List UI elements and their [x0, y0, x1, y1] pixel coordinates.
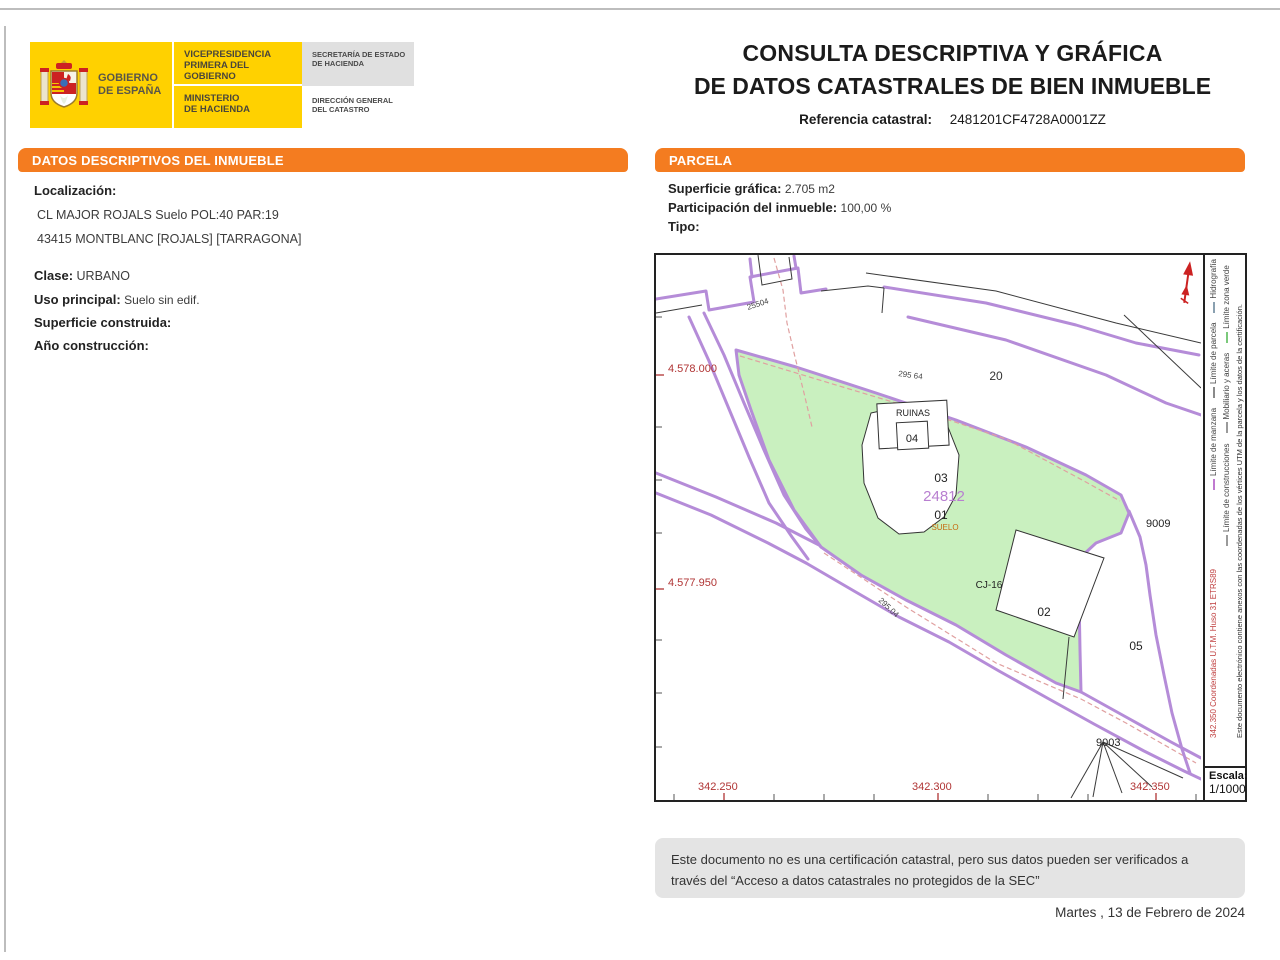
vicepresidencia-text: VICEPRESIDENCIA PRIMERA DEL GOBIERNO [174, 42, 302, 84]
map-label: RUINAS [896, 408, 930, 418]
legend-row-1: 342.350 Coordenadas U.T.M. Huso 31 ETRS8… [1207, 255, 1220, 764]
legend-label: Hidrografía [1209, 259, 1218, 299]
left-red-ticks [656, 375, 664, 589]
disclaimer-line2: través del “Acceso a datos catastrales n… [671, 870, 1229, 891]
scale-box: Escala: 1/1000 [1205, 766, 1245, 800]
map-label: 342.250 [698, 781, 738, 793]
legend-label: Límite de manzana [1209, 408, 1218, 476]
ministerio-cell: VICEPRESIDENCIA PRIMERA DEL GOBIERNO MIN… [172, 42, 302, 128]
map-label: 342.350 [1130, 781, 1170, 793]
address-line1: CL MAJOR ROJALS Suelo POL:40 PAR:19 [37, 208, 279, 222]
secretaria-text: SECRETARÍA DE ESTADO DE HACIENDA [302, 42, 414, 86]
direccion-general-text: DIRECCIÓN GENERAL DEL CATASTRO [302, 86, 414, 128]
north-arrow-icon [1179, 261, 1195, 304]
electronic-doc-note: Este documento electrónico contiene anex… [1235, 304, 1244, 738]
legend-dash-icon [1226, 423, 1228, 434]
disclaimer-line1: Este documento no es una certificación c… [671, 849, 1229, 870]
map-label: 24812 [923, 488, 965, 505]
map-label: 20 [989, 369, 1003, 383]
legend-dash-icon [1213, 479, 1215, 490]
document-date: Martes , 13 de Febrero de 2024 [655, 905, 1245, 920]
rotated-legend: 342.350 Coordenadas U.T.M. Huso 31 ETRS8… [1207, 255, 1247, 764]
document-title-block: CONSULTA DESCRIPTIVA Y GRÁFICA DE DATOS … [660, 40, 1245, 127]
ministerio-text: MINISTERIO DE HACIENDA [174, 84, 302, 128]
cadastral-map-svg: 20RUINAS04032481201SUELOCJ-1602059009900… [656, 255, 1201, 800]
legend-dash-icon [1226, 535, 1228, 546]
legend-label: Mobiliario y aceras [1222, 353, 1231, 420]
legend-label: Límite de parcela [1209, 323, 1218, 384]
legend-item: Límite de construcciones [1222, 444, 1231, 547]
legend-item: Límite de parcela [1209, 323, 1218, 398]
document-title-line1: CONSULTA DESCRIPTIVA Y GRÁFICA [660, 40, 1245, 67]
cadastral-map: 20RUINAS04032481201SUELOCJ-1602059009900… [656, 255, 1205, 800]
map-label: 4.577.950 [668, 577, 717, 589]
map-label: 25504 [746, 296, 770, 312]
bottom-ticks [674, 794, 1196, 800]
page-frame-left [4, 26, 6, 952]
map-label: 342.300 [912, 781, 952, 793]
localizacion-label: Localización: [34, 183, 116, 198]
section-header-parcela: PARCELA [655, 148, 1245, 172]
referencia-label: Referencia catastral: [799, 112, 932, 127]
superficie-construida-row: Superficie construida: [34, 315, 171, 330]
catastro-cell: SECRETARÍA DE ESTADO DE HACIENDA DIRECCI… [302, 42, 414, 128]
document-title-line2: DE DATOS CATASTRALES DE BIEN INMUEBLE [660, 73, 1245, 100]
map-label: 4.578.000 [668, 363, 717, 375]
legend-item: Hidrografía [1209, 259, 1218, 313]
map-label: 01 [934, 508, 948, 522]
map-label: 04 [906, 433, 918, 445]
uso-principal-row: Uso principal: Suelo sin edif. [34, 292, 200, 307]
spain-coat-of-arms-icon [38, 55, 90, 115]
gobierno-de-espana-cell: GOBIERNO DE ESPAÑA [30, 42, 172, 128]
gobierno-text: GOBIERNO DE ESPAÑA [98, 72, 161, 98]
map-label: 03 [934, 471, 948, 485]
legend-item: Límite de manzana [1209, 408, 1218, 490]
map-legend-sidebar: 342.350 Coordenadas U.T.M. Huso 31 ETRS8… [1205, 255, 1245, 800]
map-label: CJ-16 [976, 580, 1003, 591]
referencia-catastral: Referencia catastral: 2481201CF4728A0001… [660, 112, 1245, 127]
disclaimer-box: Este documento no es una certificación c… [655, 838, 1245, 898]
bottom-red-ticks [724, 793, 1156, 800]
legend-dash-icon [1213, 302, 1215, 313]
participacion-row: Participación del inmueble: 100,00 % [668, 200, 891, 215]
superficie-grafica-row: Superficie gráfica: 2.705 m2 [668, 181, 835, 196]
legend-item: Límite zona verde [1222, 265, 1231, 343]
legend-dash-icon [1226, 332, 1228, 343]
page-frame-top [0, 8, 1280, 10]
ano-construccion-row: Año construcción: [34, 338, 149, 353]
scale-label: Escala: [1209, 770, 1241, 782]
address-line2: 43415 MONTBLANC [ROJALS] [TARRAGONA] [37, 232, 301, 246]
left-ticks [656, 317, 662, 747]
legend-row-3: Este documento electrónico contiene anex… [1233, 255, 1246, 764]
legend-label: Límite de construcciones [1222, 444, 1231, 533]
legend-item: Mobiliario y aceras [1222, 353, 1231, 434]
cadastral-map-box: 20RUINAS04032481201SUELOCJ-1602059009900… [654, 253, 1247, 802]
map-label: 05 [1129, 639, 1143, 653]
cadastral-document-page: GOBIERNO DE ESPAÑA VICEPRESIDENCIA PRIME… [0, 0, 1280, 960]
referencia-value: 2481201CF4728A0001ZZ [950, 112, 1106, 127]
map-label: 9009 [1146, 518, 1170, 530]
government-logo-block: GOBIERNO DE ESPAÑA VICEPRESIDENCIA PRIME… [30, 42, 414, 128]
map-label: 02 [1037, 605, 1051, 619]
utm-coord-note: 342.350 Coordenadas U.T.M. Huso 31 ETRS8… [1209, 569, 1218, 738]
legend-label: Límite zona verde [1222, 265, 1231, 329]
legend-row-2: Límite de construccionesMobiliario y ace… [1220, 255, 1233, 764]
map-label: SUELO [931, 523, 958, 532]
scale-value: 1/1000 [1209, 782, 1241, 796]
legend-dash-icon [1213, 387, 1215, 398]
map-label: 9003 [1096, 737, 1120, 749]
clase-row: Clase: URBANO [34, 268, 130, 283]
tipo-row: Tipo: [668, 219, 700, 234]
map-label: 295 64 [898, 369, 924, 381]
section-header-datos: DATOS DESCRIPTIVOS DEL INMUEBLE [18, 148, 628, 172]
